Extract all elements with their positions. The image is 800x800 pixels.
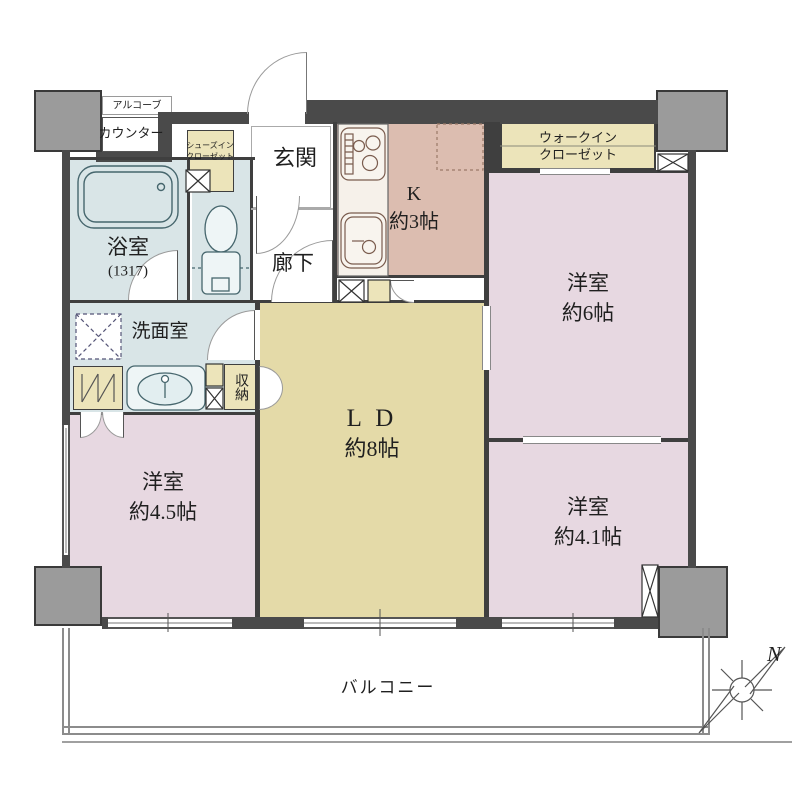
label-kitchen-l1: K xyxy=(407,183,421,205)
label-counter: カウンター xyxy=(98,127,163,142)
label-balcony: バルコニー xyxy=(341,678,436,698)
label-bath-size: (1317) xyxy=(108,263,148,280)
label-compass-north: N xyxy=(767,642,781,666)
label-wic-l2: クローゼット xyxy=(539,147,617,162)
label-ld-l2: 約8帖 xyxy=(344,436,399,461)
refrigerator-space xyxy=(437,124,483,170)
label-wic: ウォークイン クローゼット xyxy=(539,129,617,163)
label-west45-l2: 約4.5帖 xyxy=(129,500,197,524)
label-shoes-closet-l1: シューズイン xyxy=(186,141,234,150)
label-alcove: アルコーブ xyxy=(112,100,161,112)
label-kitchen-l2: 約3帖 xyxy=(389,211,439,233)
vanity-sink-icon xyxy=(127,366,205,410)
label-shoes-closet: シューズイン クローゼット xyxy=(186,140,234,162)
hall-cabinet xyxy=(368,280,390,302)
ps-box-washroom xyxy=(206,388,223,409)
label-bath: 浴室 xyxy=(107,235,149,259)
kitchen-sink-icon xyxy=(341,213,386,268)
washroom-cabinet xyxy=(206,364,223,386)
label-west41-l1: 洋室 xyxy=(567,495,609,519)
hanger-pipe-icon xyxy=(82,374,114,402)
label-washroom: 洗面室 xyxy=(131,321,188,343)
ps-box-entrance xyxy=(186,170,210,192)
ps-box-bottom-right xyxy=(642,565,658,617)
label-ld-l1: L D xyxy=(347,405,398,432)
bathtub-icon xyxy=(78,166,178,228)
toilet-icon xyxy=(192,206,250,294)
ps-box-hall xyxy=(339,280,364,302)
label-west6-l2: 約6帖 xyxy=(562,301,615,325)
label-corridor: 廊下 xyxy=(272,251,314,275)
stove-icon xyxy=(341,128,385,180)
label-west41: 洋室 約4.1帖 xyxy=(554,492,622,552)
label-storage: 収納 xyxy=(233,373,247,401)
label-wic-l1: ウォークイン xyxy=(539,130,617,145)
label-west45-l1: 洋室 xyxy=(142,470,184,494)
label-west45: 洋室 約4.5帖 xyxy=(129,467,197,527)
window-details xyxy=(66,428,614,636)
label-entrance: 玄関 xyxy=(273,145,317,170)
ps-box-top-right xyxy=(658,154,688,171)
label-west6: 洋室 約6帖 xyxy=(562,268,615,328)
label-shoes-closet-l2: クローゼット xyxy=(186,152,234,161)
label-ld: L D 約8帖 xyxy=(344,404,399,464)
label-west6-l1: 洋室 xyxy=(567,271,609,295)
label-west41-l2: 約4.1帖 xyxy=(554,525,622,549)
washing-machine-icon xyxy=(76,314,121,359)
label-kitchen: K 約3帖 xyxy=(389,180,439,236)
floor-plan: アルコーブ カウンター シューズイン クローゼット 玄関 浴室 (1317) 廊… xyxy=(0,0,800,800)
